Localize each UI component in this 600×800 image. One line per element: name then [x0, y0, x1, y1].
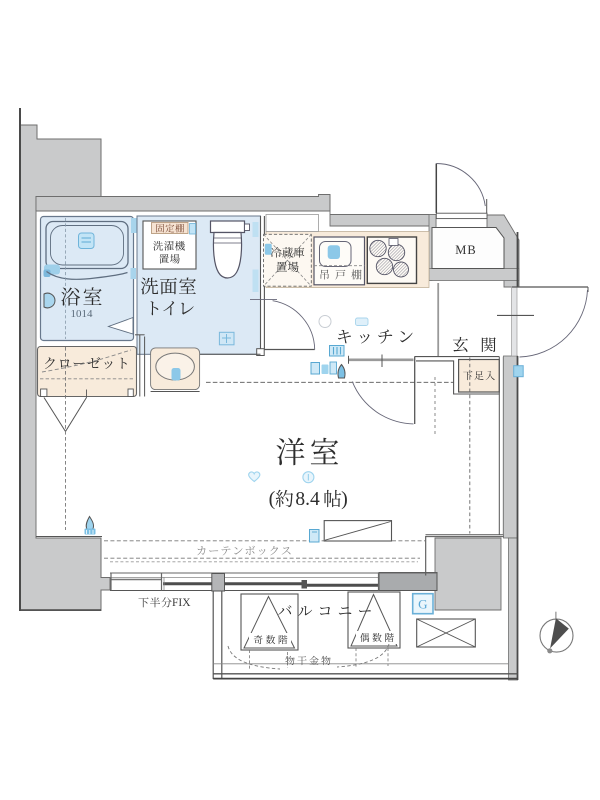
- svg-text:8.4: 8.4: [295, 489, 320, 510]
- svg-text:(: (: [269, 488, 276, 510]
- svg-text:MB: MB: [455, 243, 476, 257]
- svg-text:1014: 1014: [71, 308, 94, 320]
- svg-text:G: G: [418, 597, 427, 612]
- svg-text:FIX: FIX: [172, 597, 191, 609]
- svg-text:): ): [341, 488, 348, 510]
